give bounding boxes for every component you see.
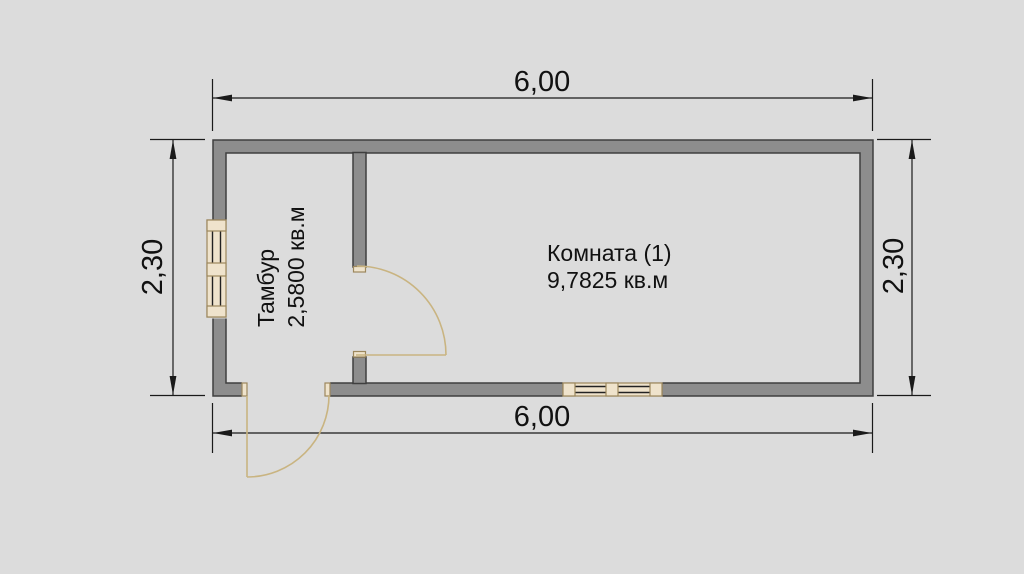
window-left (207, 220, 228, 319)
window-mullion (207, 220, 226, 231)
window-mullion (207, 263, 226, 276)
dimension-bottom-label: 6,00 (514, 401, 570, 433)
entrance-door-opening (242, 382, 330, 399)
interior-wall-lower (353, 357, 366, 384)
dimension-right-label: 2,30 (878, 238, 910, 294)
window-mullion (650, 383, 662, 396)
door-jamb (242, 383, 247, 396)
dimension-left-label: 2,30 (137, 239, 169, 295)
room-area-tambur: 2,5800 кв.м (283, 206, 309, 327)
door-jamb (354, 267, 366, 273)
dimension-top-label: 6,00 (514, 66, 570, 98)
window-mullion (207, 306, 226, 317)
door-jamb (325, 383, 330, 396)
window-mullion (563, 383, 575, 396)
window-bottom (563, 382, 663, 398)
interior-wall-upper (353, 153, 366, 268)
room-area-komnata: 9,7825 кв.м (547, 267, 668, 293)
room-name-komnata: Комната (1) (547, 240, 672, 266)
room-name-tambur: Тамбур (253, 249, 279, 327)
floor-plan-drawing: 6,00 6,00 2,30 2,30 (0, 0, 1024, 574)
floor-plan-canvas: 6,00 6,00 2,30 2,30 (0, 0, 1024, 574)
window-mullion (606, 383, 618, 396)
